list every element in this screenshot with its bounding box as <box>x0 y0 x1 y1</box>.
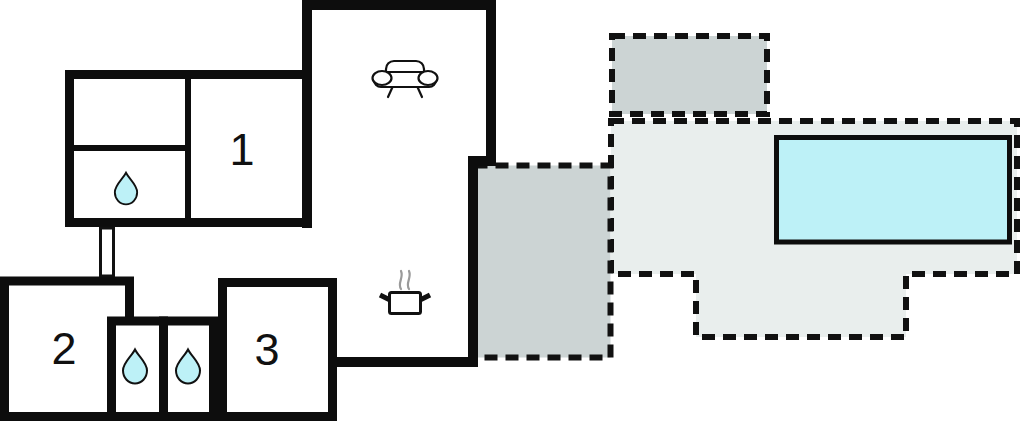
pot-body <box>390 293 421 314</box>
terrace-side <box>475 166 611 358</box>
door-connector <box>101 228 114 276</box>
water-drop-icon <box>115 173 137 205</box>
floor-plan: 1 2 3 <box>0 0 1024 423</box>
upper-block-top-wall <box>65 70 307 79</box>
room-3-label: 3 <box>254 324 279 375</box>
steam-line <box>400 271 402 289</box>
terrace-top <box>612 36 767 114</box>
living-right-upper-wall <box>486 0 496 161</box>
sofa-armrest <box>419 71 438 85</box>
sofa-armrest <box>373 71 392 85</box>
living-top-wall <box>302 0 496 10</box>
room-2-label: 2 <box>51 323 76 374</box>
living-right-lower-wall <box>468 156 478 367</box>
sofa-icon <box>373 61 438 97</box>
swimming-pool <box>777 138 1010 243</box>
steam-line <box>408 271 410 289</box>
upper-block-inner-horizontal-wall <box>74 145 188 151</box>
stove-icon <box>380 271 430 314</box>
living-left-wall <box>302 0 312 228</box>
kitchen-bottom-wall <box>328 357 478 367</box>
upper-block-bottom-wall <box>65 218 307 227</box>
room-1-label: 1 <box>229 124 254 175</box>
upper-block-left-wall <box>65 70 74 227</box>
steam-lines <box>400 271 410 289</box>
